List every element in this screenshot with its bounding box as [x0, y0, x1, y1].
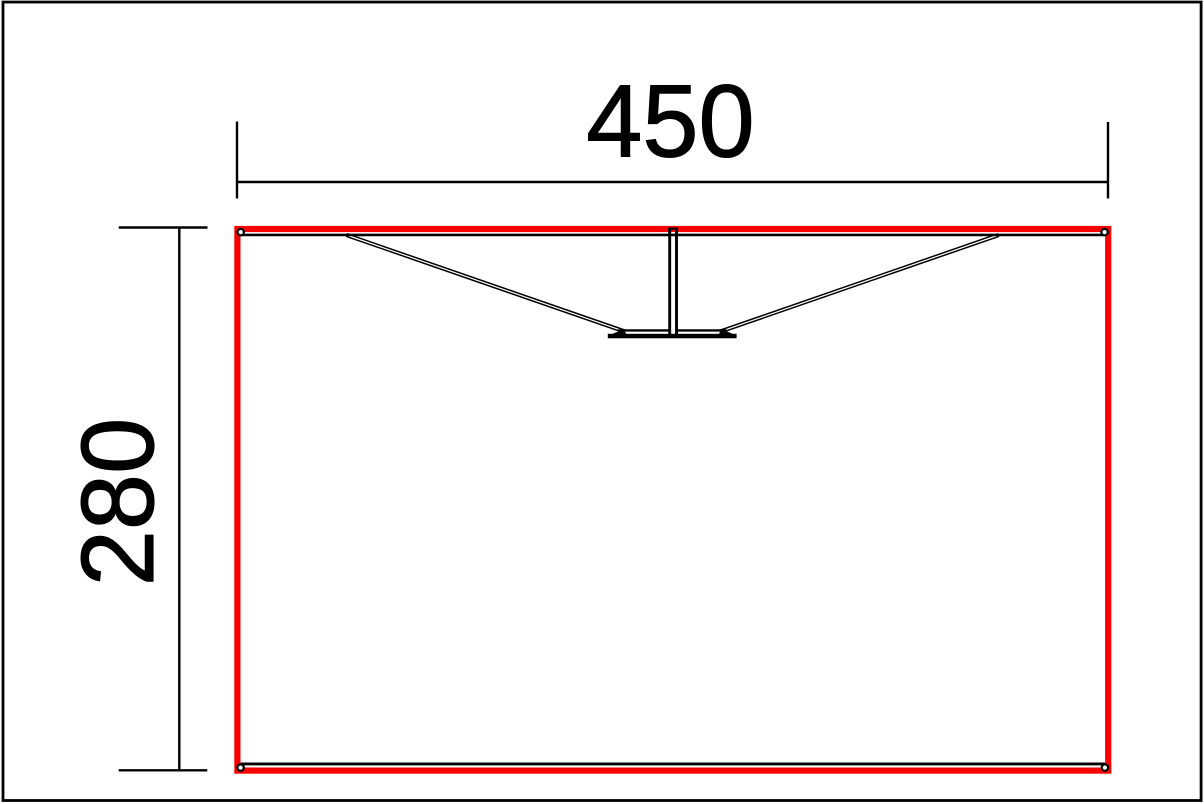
svg-text:450: 450: [586, 64, 754, 179]
svg-text:280: 280: [60, 418, 175, 586]
